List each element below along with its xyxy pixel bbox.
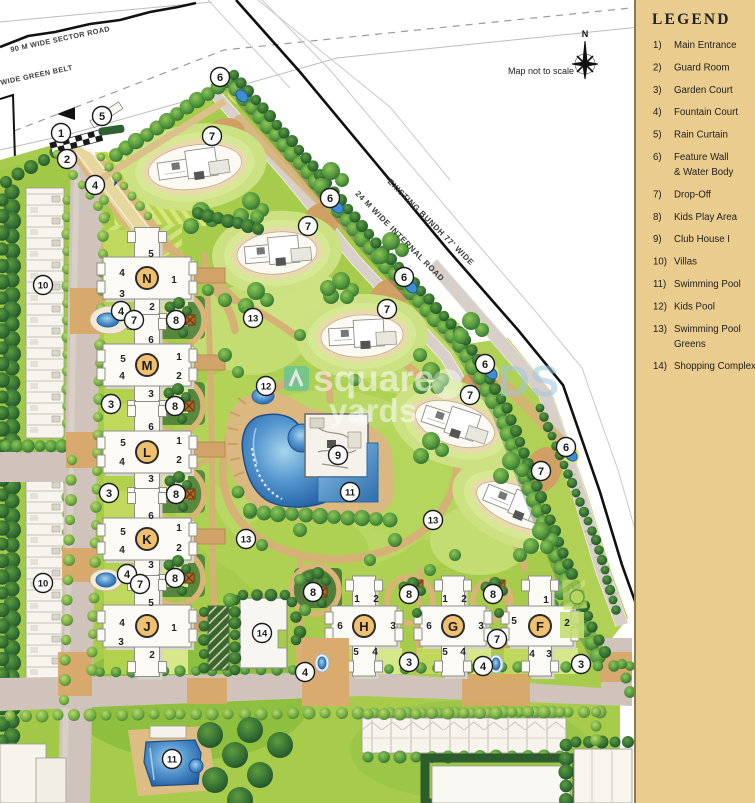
svg-text:Rain Curtain: Rain Curtain — [674, 130, 728, 141]
svg-text:13: 13 — [241, 534, 252, 545]
svg-text:6: 6 — [337, 621, 343, 632]
svg-text:13: 13 — [428, 515, 439, 526]
svg-text:6: 6 — [401, 272, 407, 284]
svg-text:2: 2 — [461, 594, 467, 605]
svg-text:Fountain Court: Fountain Court — [674, 107, 738, 118]
svg-text:M: M — [142, 358, 153, 373]
svg-text:8: 8 — [406, 589, 412, 601]
svg-text:8: 8 — [172, 401, 178, 413]
svg-text:2: 2 — [373, 594, 379, 605]
svg-text:Map not to scale: Map not to scale — [508, 66, 574, 76]
svg-text:Swimming Pool: Swimming Pool — [674, 279, 741, 290]
svg-text:3: 3 — [406, 657, 412, 669]
svg-text:7: 7 — [467, 390, 473, 402]
svg-text:1: 1 — [354, 594, 360, 605]
svg-text:4: 4 — [119, 618, 125, 629]
svg-text:Club House I: Club House I — [674, 234, 730, 245]
svg-text:5: 5 — [148, 598, 154, 609]
svg-text:Kids Play Area: Kids Play Area — [674, 212, 738, 223]
svg-text:1): 1) — [653, 40, 662, 51]
svg-text:Swimming Pool: Swimming Pool — [674, 324, 741, 335]
svg-text:1: 1 — [442, 594, 448, 605]
svg-text:Kids Pool: Kids Pool — [674, 301, 715, 312]
svg-text:14: 14 — [257, 628, 268, 639]
svg-text:5: 5 — [353, 647, 359, 658]
svg-text:N: N — [582, 29, 589, 39]
svg-text:5: 5 — [120, 438, 126, 449]
svg-text:8: 8 — [173, 315, 179, 327]
svg-text:3: 3 — [478, 621, 484, 632]
svg-text:14): 14) — [653, 361, 667, 372]
svg-text:2: 2 — [64, 154, 70, 166]
svg-text:12: 12 — [261, 381, 272, 392]
svg-text:6: 6 — [148, 335, 154, 346]
svg-text:Drop-Off: Drop-Off — [674, 189, 711, 200]
svg-text:4: 4 — [460, 647, 466, 658]
svg-text:7: 7 — [494, 634, 500, 646]
svg-text:3: 3 — [108, 399, 114, 411]
svg-text:7): 7) — [653, 189, 662, 200]
svg-text:4: 4 — [119, 268, 125, 279]
svg-text:3: 3 — [578, 659, 584, 671]
svg-text:3: 3 — [148, 474, 154, 485]
svg-text:11): 11) — [653, 279, 666, 290]
svg-text:F: F — [536, 619, 544, 634]
svg-text:Shopping Complex: Shopping Complex — [674, 361, 755, 372]
svg-text:& Water Body: & Water Body — [674, 167, 734, 178]
svg-text:6: 6 — [426, 621, 432, 632]
svg-text:6: 6 — [482, 359, 488, 371]
svg-text:yards: yards — [329, 392, 417, 429]
svg-text:1: 1 — [176, 523, 182, 534]
svg-text:Guard Room: Guard Room — [674, 62, 729, 73]
svg-text:H: H — [359, 619, 368, 634]
svg-text:3: 3 — [390, 621, 396, 632]
svg-text:7: 7 — [384, 304, 390, 316]
svg-text:G: G — [448, 619, 458, 634]
svg-text:1: 1 — [171, 623, 177, 634]
svg-text:Feature Wall: Feature Wall — [674, 152, 729, 163]
svg-text:4: 4 — [119, 371, 125, 382]
svg-text:13: 13 — [248, 313, 259, 324]
svg-text:4: 4 — [92, 180, 99, 192]
svg-text:3: 3 — [148, 389, 154, 400]
svg-text:12): 12) — [653, 301, 667, 312]
svg-text:2: 2 — [176, 455, 182, 466]
svg-text:1: 1 — [171, 275, 177, 286]
svg-text:3: 3 — [106, 488, 112, 500]
svg-text:2: 2 — [176, 543, 182, 554]
svg-text:3: 3 — [148, 560, 154, 571]
svg-text:2: 2 — [149, 650, 155, 661]
svg-text:4: 4 — [529, 649, 535, 660]
svg-text:K: K — [142, 532, 152, 547]
svg-text:4): 4) — [653, 107, 662, 118]
svg-text:Greens: Greens — [674, 339, 706, 350]
svg-text:6: 6 — [217, 72, 223, 84]
svg-text:3): 3) — [653, 85, 662, 96]
svg-text:6: 6 — [563, 442, 569, 454]
svg-text:2): 2) — [653, 62, 662, 73]
svg-text:6): 6) — [653, 152, 662, 163]
svg-text:10: 10 — [38, 578, 49, 589]
svg-text:8: 8 — [310, 587, 316, 599]
svg-text:9: 9 — [335, 450, 341, 462]
svg-text:8: 8 — [173, 489, 179, 501]
svg-text:8: 8 — [490, 589, 496, 601]
svg-text:3: 3 — [546, 649, 552, 660]
svg-text:8): 8) — [653, 212, 662, 223]
svg-text:3: 3 — [118, 637, 124, 648]
svg-text:J: J — [143, 619, 150, 634]
svg-text:N: N — [142, 271, 151, 286]
svg-text:7: 7 — [305, 221, 311, 233]
svg-text:DS: DS — [498, 357, 559, 406]
svg-text:11: 11 — [345, 487, 356, 498]
svg-text:6: 6 — [148, 422, 154, 433]
svg-text:4: 4 — [302, 667, 309, 679]
svg-text:5: 5 — [148, 249, 154, 260]
svg-text:5: 5 — [99, 111, 105, 123]
svg-text:2: 2 — [564, 618, 570, 629]
svg-text:LEGEND: LEGEND — [652, 11, 731, 28]
svg-text:Villas: Villas — [674, 257, 697, 268]
svg-text:7: 7 — [131, 315, 137, 327]
svg-text:9): 9) — [653, 234, 662, 245]
svg-text:4: 4 — [119, 457, 125, 468]
svg-text:6: 6 — [327, 193, 333, 205]
svg-text:1: 1 — [58, 128, 64, 140]
svg-text:3: 3 — [119, 289, 125, 300]
svg-text:7: 7 — [209, 131, 215, 143]
svg-text:4: 4 — [480, 661, 487, 673]
svg-text:4: 4 — [124, 569, 131, 581]
svg-text:5: 5 — [120, 527, 126, 538]
svg-text:1: 1 — [543, 595, 549, 606]
svg-text:5): 5) — [653, 130, 662, 141]
svg-text:8: 8 — [172, 573, 178, 585]
svg-text:4: 4 — [119, 545, 125, 556]
svg-text:10): 10) — [653, 257, 667, 268]
svg-text:7: 7 — [137, 579, 143, 591]
svg-text:4: 4 — [372, 647, 378, 658]
svg-text:6: 6 — [148, 511, 154, 522]
svg-text:1: 1 — [176, 352, 182, 363]
svg-text:2: 2 — [176, 371, 182, 382]
svg-text:5: 5 — [120, 354, 126, 365]
svg-text:11: 11 — [167, 754, 178, 765]
svg-text:13): 13) — [653, 324, 667, 335]
svg-text:10: 10 — [38, 280, 49, 291]
svg-text:Main Entrance: Main Entrance — [674, 40, 736, 51]
svg-text:5: 5 — [511, 616, 517, 627]
svg-text:2: 2 — [149, 302, 155, 313]
svg-text:L: L — [143, 445, 151, 460]
svg-text:7: 7 — [538, 466, 544, 478]
svg-text:5: 5 — [442, 647, 448, 658]
svg-text:4: 4 — [118, 306, 125, 318]
svg-text:1: 1 — [176, 436, 182, 447]
svg-text:Garden Court: Garden Court — [674, 85, 733, 96]
